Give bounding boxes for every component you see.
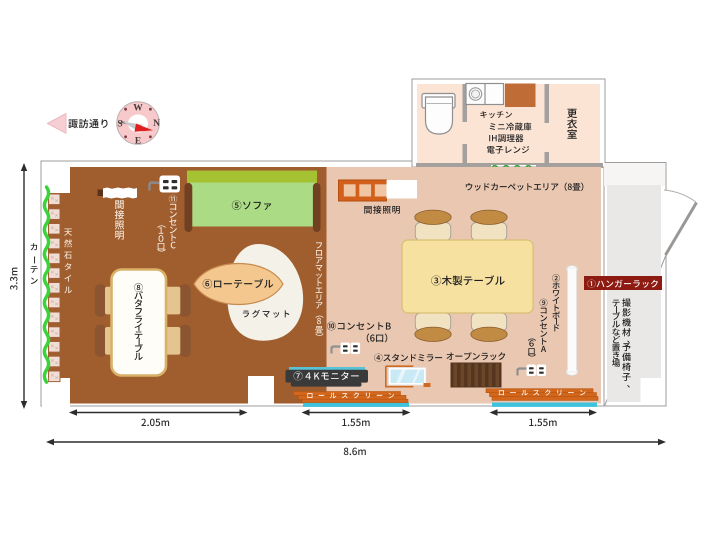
svg-text:E: E [135, 137, 141, 147]
svg-text:N: N [153, 119, 160, 129]
svg-text:S: S [117, 120, 122, 130]
svg-text:W: W [133, 104, 143, 114]
